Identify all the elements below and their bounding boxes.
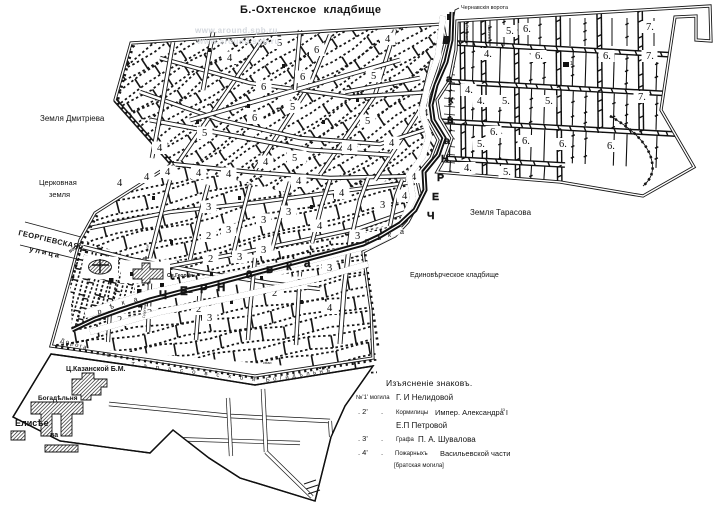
svg-text:4: 4 [196,168,202,179]
svg-text:5: 5 [290,102,295,113]
svg-text:Ч: Ч [159,290,167,302]
svg-text:5.: 5. [545,96,553,107]
svg-text:Р: Р [200,284,208,296]
svg-text:4: 4 [227,53,233,64]
svg-text:Н: Н [441,153,449,165]
svg-text:3: 3 [207,313,212,324]
svg-text:5: 5 [292,153,297,164]
svg-text:4.: 4. [465,85,473,96]
svg-text:4: 4 [347,143,353,154]
svg-text:4: 4 [385,34,391,45]
svg-text:6.: 6. [522,136,530,147]
svg-text:а: а [400,229,404,236]
svg-text:Н: Н [217,282,225,294]
svg-text:Г. И Нелидовой: Г. И Нелидовой [396,393,453,402]
svg-text:4: 4 [144,172,150,183]
svg-text:Импер. Александра I: Импер. Александра I [435,408,508,417]
svg-text:4.: 4. [464,163,472,174]
svg-text:Ч: Ч [427,210,434,222]
svg-text:3: 3 [261,245,266,256]
svg-text:4: 4 [296,176,302,187]
svg-text:Рижская: Рижская [465,25,469,40]
svg-text:а: а [446,73,452,85]
svg-text:Смолен.: Смолен. [487,25,491,40]
svg-text:Е: Е [180,286,188,298]
svg-text:. 4': . 4' [358,448,368,457]
svg-text:П. А. Шувалова: П. А. Шувалова [418,435,476,444]
svg-text:5: 5 [371,71,376,82]
svg-text:5.: 5. [506,26,514,37]
svg-text:а: а [304,258,311,270]
svg-text:6.: 6. [490,127,498,138]
svg-text:6: 6 [261,82,266,93]
svg-text:4: 4 [327,303,333,314]
svg-text:Св.Георгія: Св.Георгія [167,273,193,279]
svg-text:6.: 6. [603,51,611,62]
svg-text:4: 4 [402,191,408,202]
svg-text:3: 3 [206,202,211,213]
svg-text:4: 4 [226,169,232,180]
svg-text:Васильевской части: Васильевской части [440,449,510,458]
svg-text:4.: 4. [477,96,485,107]
svg-text:в: в [447,114,454,126]
svg-text:6.: 6. [535,51,543,62]
svg-text:2: 2 [208,254,213,265]
svg-text:6: 6 [314,45,319,56]
svg-text:а: а [246,268,253,280]
svg-text:4: 4 [339,188,345,199]
svg-text:2: 2 [206,231,211,242]
svg-text:1': 1' [570,61,574,67]
svg-text:3: 3 [237,252,242,263]
svg-text:к: к [448,94,454,106]
svg-text:Р: Р [437,172,444,184]
svg-text:www.around.spb.ru: www.around.spb.ru [196,37,280,46]
svg-text:7.: 7. [646,51,654,62]
svg-text:Церковная: Церковная [39,178,77,187]
svg-text:ѣ: ѣ [377,234,382,242]
svg-text:в: в [266,264,273,276]
svg-text:Богадѣльня: Богадѣльня [38,394,78,402]
svg-text:.: . [381,434,383,443]
svg-text:Е: Е [432,191,439,203]
svg-text:3: 3 [380,200,385,211]
svg-text:6: 6 [300,72,305,83]
svg-text:4: 4 [157,143,163,154]
svg-text:4: 4 [117,178,123,189]
svg-text:[братская могила]: [братская могила] [394,463,444,469]
svg-text:р: р [365,238,369,245]
svg-text:4.: 4. [484,49,492,60]
svg-text:№'1' могила: №'1' могила [356,394,390,401]
svg-text:5.: 5. [503,167,511,178]
svg-text:. 3': . 3' [358,434,368,443]
svg-text:Земля Дмитріева: Земля Дмитріева [40,114,105,123]
svg-text:3: 3 [355,231,360,242]
svg-text:3: 3 [286,207,291,218]
svg-text:6.: 6. [607,141,615,152]
svg-text:5.: 5. [502,96,510,107]
svg-text:6.: 6. [559,139,567,150]
svg-text:Б.-Охтенское кладбище: Б.-Охтенское кладбище [240,4,381,16]
svg-text:4: 4 [263,157,269,168]
svg-text:Ц.Казанской Б.М.: Ц.Казанской Б.М. [66,365,126,373]
svg-text:Кормилицы: Кормилицы [396,410,428,416]
svg-text:к: к [286,261,292,273]
svg-text:4: 4 [317,221,323,232]
svg-text:Единовѣрческое кладбище: Единовѣрческое кладбище [410,271,499,279]
svg-text:а: а [444,135,450,147]
svg-text:Изъясненіе знаковъ.: Изъясненіе знаковъ. [386,378,473,388]
svg-text:Пожарныхъ: Пожарныхъ [395,451,428,457]
svg-text:5: 5 [365,116,370,127]
svg-text:5.: 5. [477,139,485,150]
svg-text:7.: 7. [638,92,646,103]
svg-text:.: . [381,448,383,457]
svg-text:сваи: сваи [263,360,272,365]
svg-text:Графа: Графа [396,437,415,443]
svg-text:Чернавскія ворота: Чернавскія ворота [461,5,509,11]
svg-text:.: . [381,407,383,416]
svg-text:. 2': . 2' [358,407,368,416]
svg-text:земля: земля [49,190,70,199]
svg-text:6.: 6. [523,24,531,35]
svg-text:Елисѣе: Елисѣе [15,418,49,428]
svg-text:3: 3 [226,225,231,236]
svg-text:4: 4 [165,167,171,178]
svg-text:Е.П Петровой: Е.П Петровой [396,421,447,430]
svg-text:4: 4 [389,138,395,149]
svg-text:свая: свая [145,244,150,252]
svg-text:3: 3 [261,215,266,226]
svg-text:5: 5 [202,128,207,139]
svg-text:ва: ва [50,432,58,439]
svg-text:Земля Тарасова: Земля Тарасова [470,208,532,217]
svg-text:го: го [501,407,506,412]
svg-text:7.: 7. [646,22,654,33]
svg-text:www.around.spb.ru: www.around.spb.ru [194,26,278,35]
svg-text:6: 6 [252,113,257,124]
